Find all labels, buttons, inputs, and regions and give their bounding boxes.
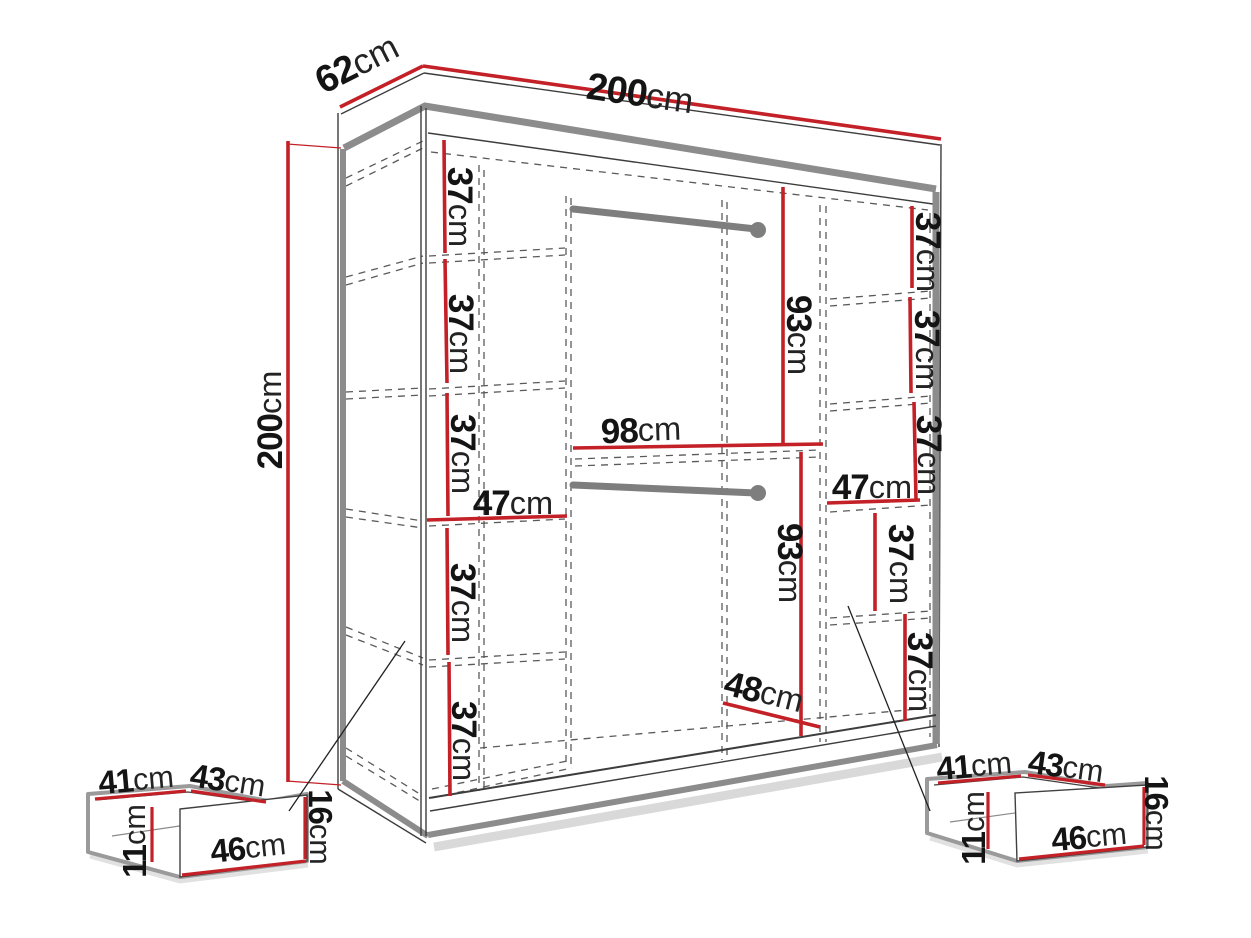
dim-label-right-gap-1: 37cm bbox=[909, 212, 948, 292]
dim-label-center-width: 98cm bbox=[600, 409, 682, 451]
dim-label-height: 200cm bbox=[251, 371, 290, 470]
dim-label-lower-rail: 93cm bbox=[771, 523, 810, 603]
dim-label-right-gap-2: 37cm bbox=[908, 310, 947, 390]
dim-label-drawer-right-side-height: 11cm bbox=[955, 791, 992, 865]
dim-label-left-gap-2: 37cm bbox=[442, 294, 481, 374]
dim-label-right-gap-4: 37cm bbox=[882, 524, 921, 604]
dim-label-drawer-right-height: 16cm bbox=[1139, 775, 1176, 851]
wardrobe-dimension-diagram: 62cm 200cm 200cm 37cm 37cm 37cm 47cm 37c… bbox=[0, 0, 1251, 938]
dim-label-upper-rail: 93cm bbox=[780, 295, 819, 375]
dim-label-left-gap-1: 37cm bbox=[441, 167, 480, 247]
rail-end-cap bbox=[750, 222, 766, 238]
wardrobe-body bbox=[338, 67, 941, 836]
dim-label-right-gap-5: 37cm bbox=[901, 632, 940, 712]
dim-label-drawer-left-side-height: 11cm bbox=[116, 804, 153, 878]
dim-label-left-gap-3: 37cm bbox=[444, 414, 483, 494]
dim-label-left-col-width: 47cm bbox=[473, 484, 553, 523]
extension-tick bbox=[287, 144, 341, 148]
dim-label-left-gap-5: 37cm bbox=[445, 701, 484, 781]
dim-label-right-col-width: 47cm bbox=[832, 468, 912, 507]
diagram-canvas: 62cm 200cm 200cm 37cm 37cm 37cm 47cm 37c… bbox=[0, 0, 1251, 938]
extension-tick bbox=[287, 781, 341, 785]
dim-label-left-gap-4: 37cm bbox=[444, 563, 483, 643]
dim-label-right-gap-3: 37cm bbox=[910, 415, 949, 495]
left-side-panel bbox=[338, 106, 428, 836]
dim-label-drawer-left-height: 16cm bbox=[303, 789, 340, 865]
rail-end-cap bbox=[750, 485, 766, 501]
